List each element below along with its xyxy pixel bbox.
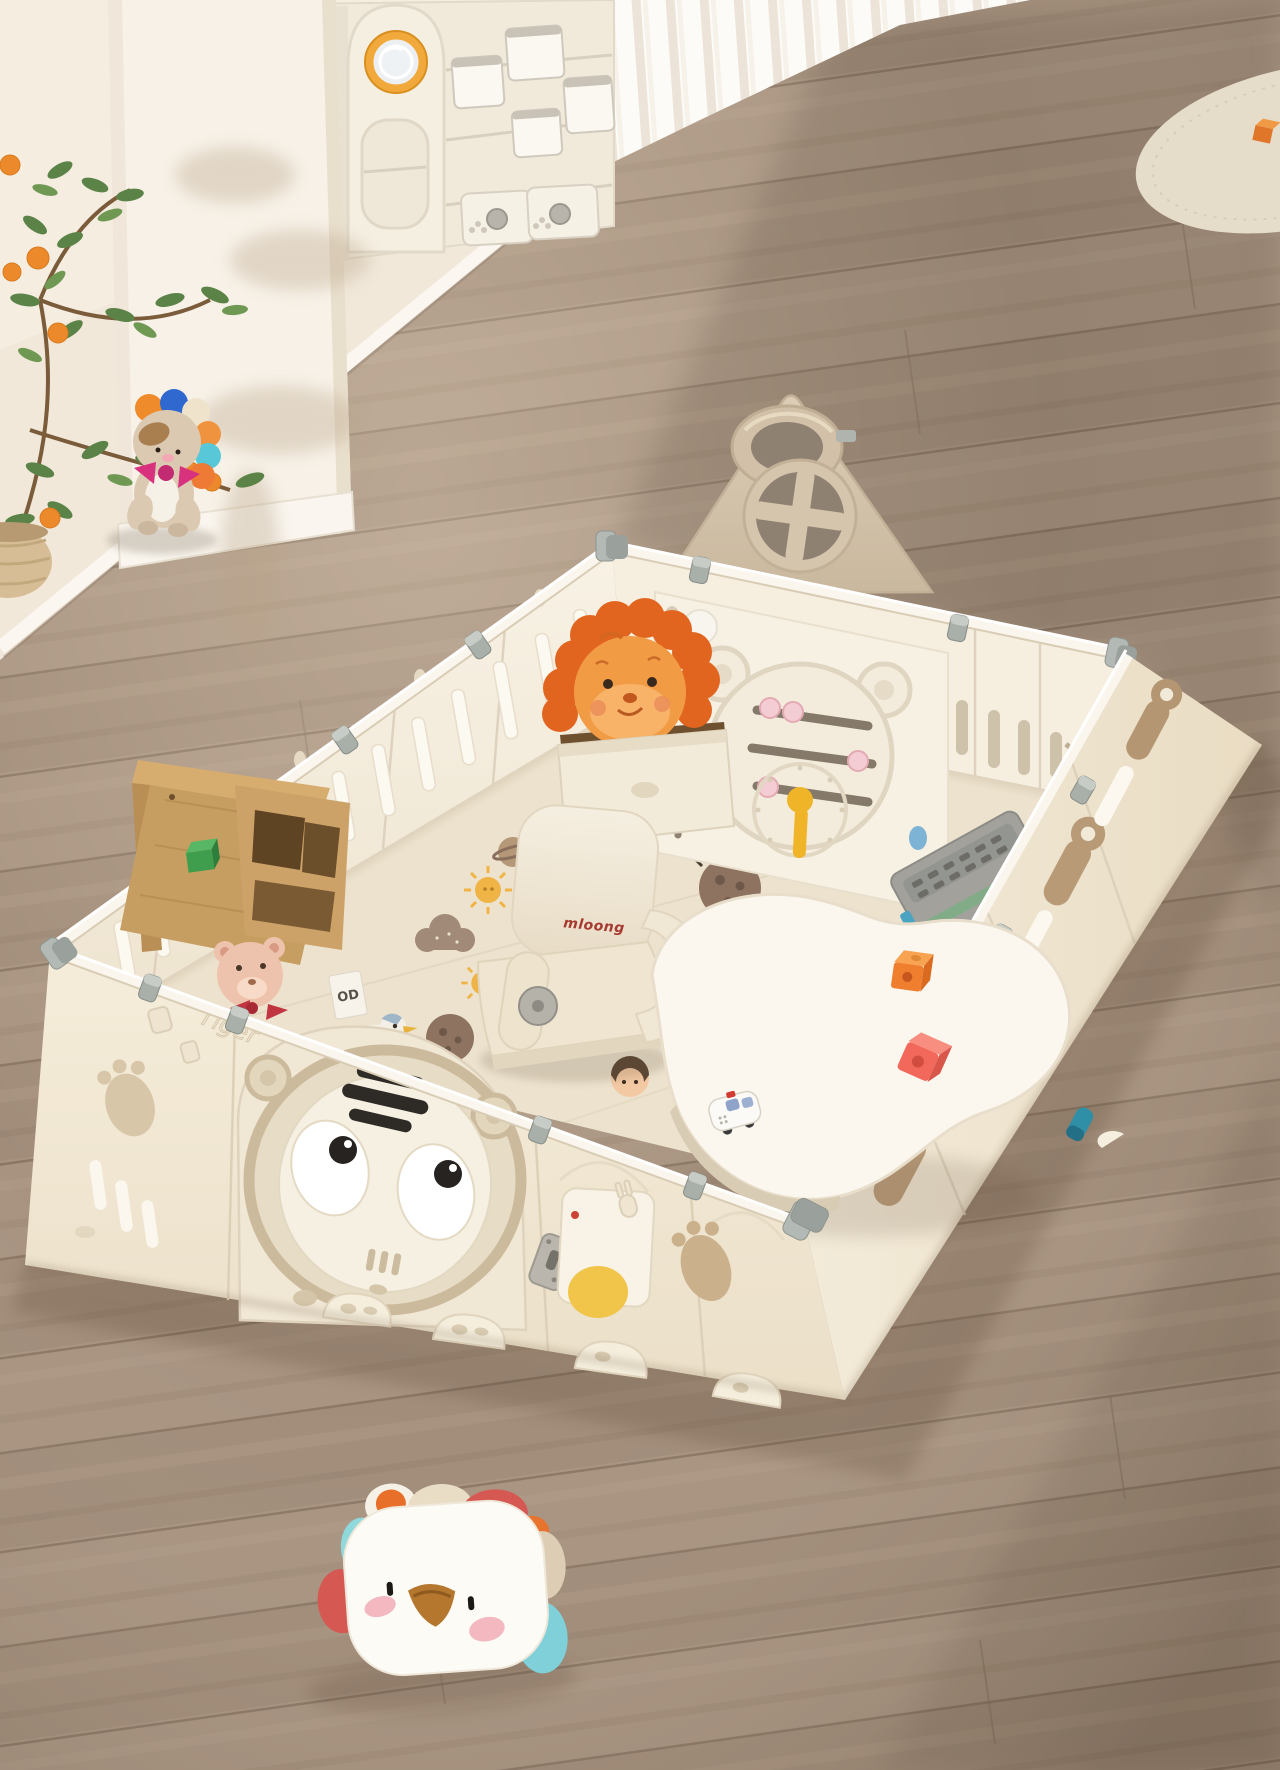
- shelf-cubbies: [235, 785, 350, 950]
- chair-backrest: [509, 802, 662, 964]
- pillow-eye: [468, 1596, 475, 1610]
- shelf-drawers: [461, 184, 600, 246]
- lion-nose: [162, 454, 174, 462]
- drawer-knob: [487, 209, 507, 229]
- bean-table: [652, 894, 1070, 1237]
- shelf-porthole-window: [365, 31, 427, 93]
- tiger-pupil: [329, 1136, 357, 1164]
- drawer-knob: [550, 204, 570, 224]
- yellow-half-disc: [568, 1266, 628, 1318]
- shelf-panel-window: [362, 120, 428, 228]
- pillow-eye: [386, 1582, 393, 1596]
- blue-bead: [909, 826, 927, 850]
- corner-clip: [596, 531, 628, 561]
- white-book: OD: [328, 971, 367, 1020]
- playroom-photo: OD: [0, 0, 1280, 1770]
- tiger-pupil: [434, 1160, 462, 1188]
